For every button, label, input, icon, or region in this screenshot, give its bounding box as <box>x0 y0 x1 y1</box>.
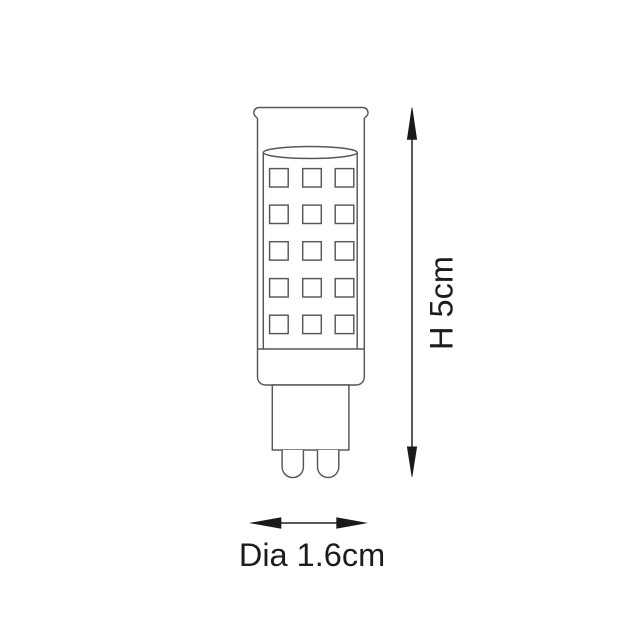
svg-text:H 5cm: H 5cm <box>424 256 460 350</box>
svg-text:Dia 1.6cm: Dia 1.6cm <box>239 537 385 573</box>
